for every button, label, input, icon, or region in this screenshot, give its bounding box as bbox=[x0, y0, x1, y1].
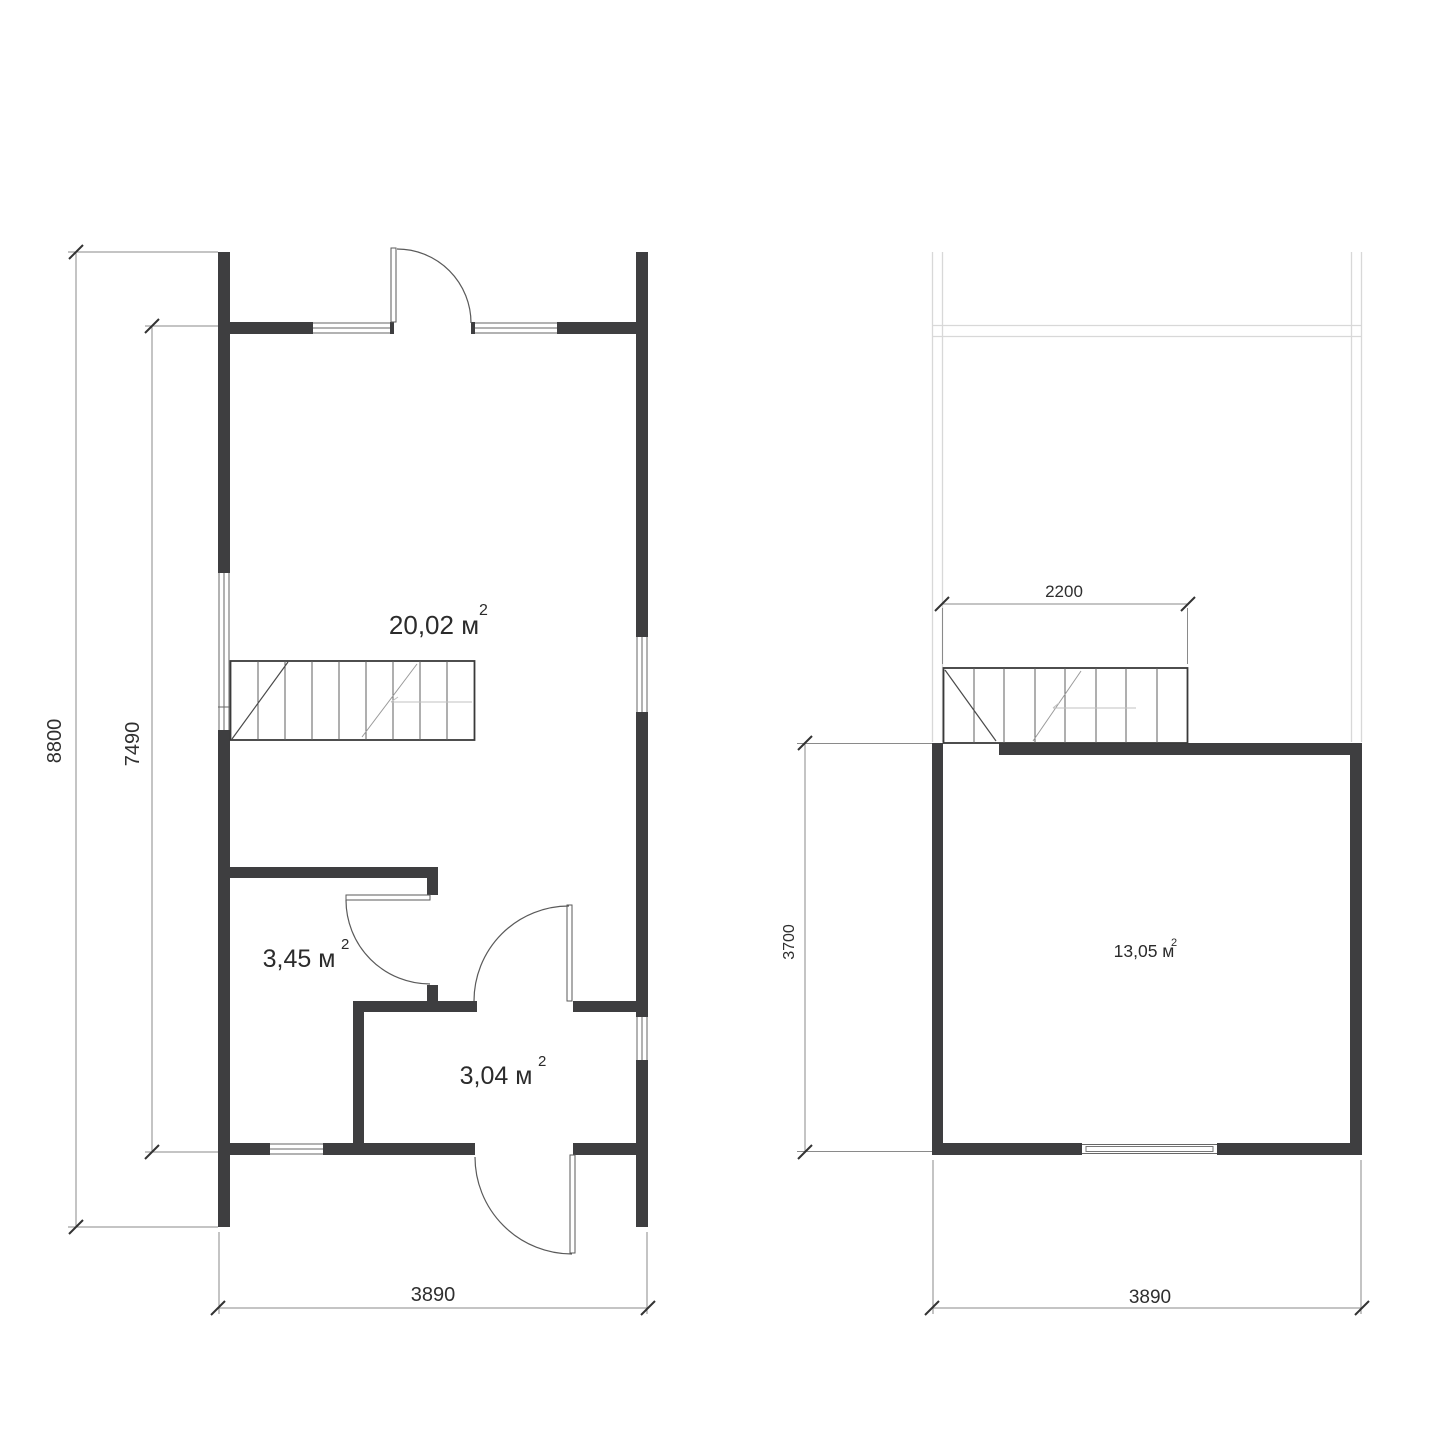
window-right-wall-lower bbox=[636, 1017, 648, 1060]
door-leaf bbox=[391, 248, 396, 322]
door-leaf bbox=[567, 905, 572, 1001]
window-top-left bbox=[313, 322, 390, 334]
dim-line-3700 bbox=[797, 743, 932, 1152]
wall-segment bbox=[557, 322, 648, 334]
wall-segment bbox=[218, 252, 230, 573]
door-swing-arc bbox=[475, 1157, 572, 1254]
wall-segment bbox=[228, 867, 438, 878]
window-bottom-upper bbox=[1082, 1143, 1217, 1155]
wall-segment bbox=[1217, 1143, 1362, 1155]
dim-text-3700: 3700 bbox=[781, 924, 798, 960]
dim-text-8800: 8800 bbox=[44, 719, 66, 764]
room-area-label: 3,04 м bbox=[460, 1062, 533, 1090]
upper-floor-plan: 2200 3700 3890 13,05 м 2 bbox=[781, 252, 1369, 1315]
door-jamb bbox=[471, 322, 475, 334]
room-area-superscript: 2 bbox=[538, 1053, 546, 1070]
wall-segment bbox=[1350, 743, 1362, 1155]
window-bottom-wall bbox=[270, 1143, 323, 1155]
ground-floor-plan: 8800 7490 3890 20,02 м 2 3,45 м 2 3,04 м… bbox=[44, 245, 655, 1315]
window-right-wall-upper bbox=[636, 637, 648, 712]
floor-plan-drawing: 8800 7490 3890 20,02 м 2 3,45 м 2 3,04 м… bbox=[0, 0, 1445, 1445]
room-labels-upper-floor: 13,05 м 2 bbox=[1114, 937, 1177, 961]
floor-plan-canvas: 8800 7490 3890 20,02 м 2 3,45 м 2 3,04 м… bbox=[0, 0, 1445, 1445]
dim-line-7490 bbox=[145, 326, 218, 1152]
room-area-label: 20,02 м bbox=[389, 610, 479, 640]
wall-segment bbox=[932, 1143, 1082, 1155]
stairs-ground-floor bbox=[231, 661, 475, 740]
door-jamb bbox=[390, 322, 394, 334]
door-swing-arc bbox=[474, 906, 569, 1001]
door-swing-arc bbox=[397, 249, 471, 323]
doors bbox=[346, 248, 575, 1254]
interior-walls bbox=[228, 867, 636, 1143]
dim-line-2200 bbox=[942, 604, 1188, 664]
wall-segment bbox=[218, 322, 313, 334]
dim-text-3890-left: 3890 bbox=[411, 1284, 456, 1306]
wall-segment bbox=[353, 1012, 364, 1143]
room-area-label: 13,05 м bbox=[1114, 941, 1175, 961]
interior-door-entry-room bbox=[474, 905, 572, 1001]
door-leaf bbox=[570, 1155, 575, 1253]
wall-segment bbox=[636, 712, 648, 1017]
wall-segment bbox=[999, 743, 1362, 755]
wall-segment bbox=[573, 1143, 648, 1155]
dim-text-7490: 7490 bbox=[122, 722, 144, 767]
window-left-wall bbox=[218, 573, 230, 730]
room-area-superscript: 2 bbox=[341, 936, 349, 953]
room-area-superscript: 2 bbox=[479, 602, 488, 619]
entrance-door-bottom bbox=[475, 1155, 575, 1254]
room-area-label: 3,45 м bbox=[263, 945, 336, 973]
stairs-upper-floor bbox=[944, 668, 1188, 743]
wall-segment bbox=[218, 1143, 270, 1155]
interior-door-small-room bbox=[346, 895, 430, 984]
window-top-right bbox=[475, 322, 557, 334]
wall-segment bbox=[323, 1143, 475, 1155]
wall-segment bbox=[636, 252, 648, 637]
wall-segment bbox=[573, 1001, 636, 1012]
dim-text-3890-right: 3890 bbox=[1129, 1287, 1171, 1308]
wall-segment bbox=[353, 1001, 477, 1012]
entrance-door-top bbox=[391, 248, 471, 323]
dim-text-2200: 2200 bbox=[1045, 582, 1083, 601]
door-swing-arc bbox=[346, 900, 430, 984]
wall-segment bbox=[932, 743, 943, 1155]
door-leaf bbox=[346, 895, 430, 900]
room-area-superscript: 2 bbox=[1171, 937, 1177, 949]
wall-segment bbox=[427, 878, 438, 895]
wall-segment bbox=[427, 985, 438, 1001]
